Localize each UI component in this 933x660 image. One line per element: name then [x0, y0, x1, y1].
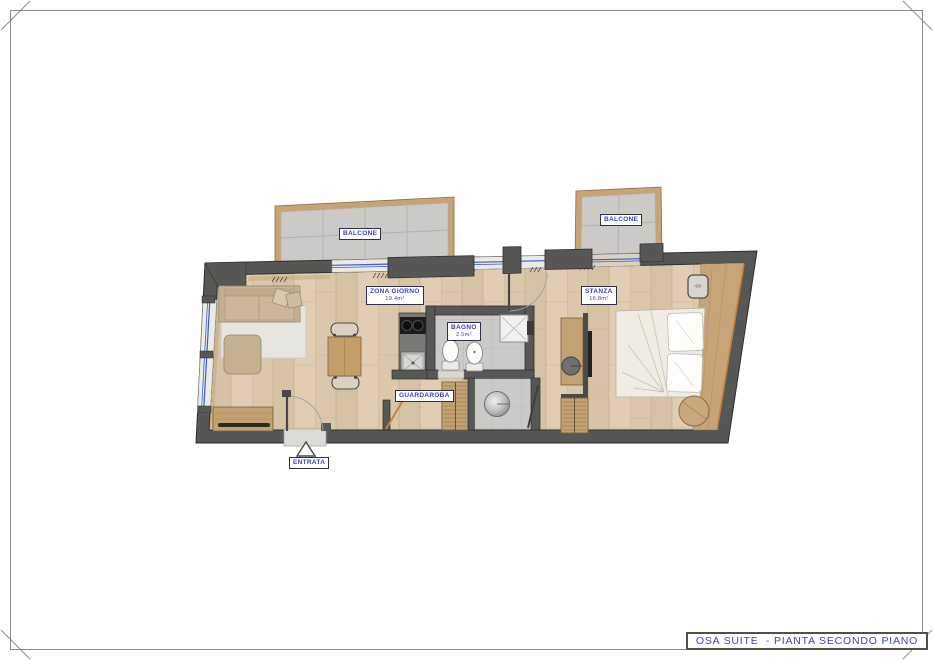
window-top-1 [332, 259, 388, 272]
tv-screen [588, 331, 592, 377]
bed [616, 308, 705, 397]
room-label-zona-giorno: ZONA GIORNO 19.4m² [366, 286, 424, 305]
bathroom [426, 306, 534, 379]
room-area-text: 19.4m² [370, 296, 420, 303]
sideboard [213, 407, 273, 431]
title-block: OSA SUITE - PIANTA SECONDO PIANO [686, 632, 928, 650]
dining-table [328, 323, 361, 389]
bedroom-desk [561, 313, 592, 396]
bidet [466, 342, 483, 371]
room-label-text: BALCONE [604, 216, 638, 223]
room-label-stanza: STANZA 16.8m² [581, 286, 617, 305]
room-label-entrata: ENTRATA [289, 457, 329, 469]
laundry-room [468, 378, 540, 430]
bedroom-pouf [679, 396, 709, 426]
room-label-text: ZONA GIORNO [370, 288, 420, 295]
room-label-bagno: BAGNO 2.5m² [447, 322, 481, 341]
room-label-guardaroba: GUARDAROBA [395, 390, 454, 402]
ottoman [224, 335, 261, 374]
window-top-2 [474, 257, 503, 270]
window-top-3 [521, 256, 545, 269]
balcony-door-bedroom [592, 254, 640, 267]
room-area-text: 2.5m² [451, 332, 477, 339]
room-area-text: 16.8m² [585, 296, 613, 303]
room-label-balcone-left: BALCONE [339, 228, 381, 240]
room-label-text: BALCONE [343, 230, 377, 237]
bathroom-door-threshold [438, 371, 464, 378]
drawing-sheet: BALCONE BALCONE ZONA GIORNO 19.4m² STANZ… [0, 0, 933, 660]
room-label-text: ENTRATA [293, 459, 325, 466]
room-label-text: STANZA [585, 288, 613, 295]
kitchen-counter [399, 313, 427, 377]
toilet [442, 340, 459, 370]
room-label-balcone-right: BALCONE [600, 214, 642, 226]
room-label-text: GUARDAROBA [399, 392, 450, 399]
nightstand [688, 275, 708, 298]
sofa [219, 286, 302, 322]
room-label-text: BAGNO [451, 324, 477, 331]
bedroom-closet [561, 394, 588, 433]
drawing-title: OSA SUITE - PIANTA SECONDO PIANO [696, 635, 918, 647]
tv-partition [583, 313, 588, 396]
